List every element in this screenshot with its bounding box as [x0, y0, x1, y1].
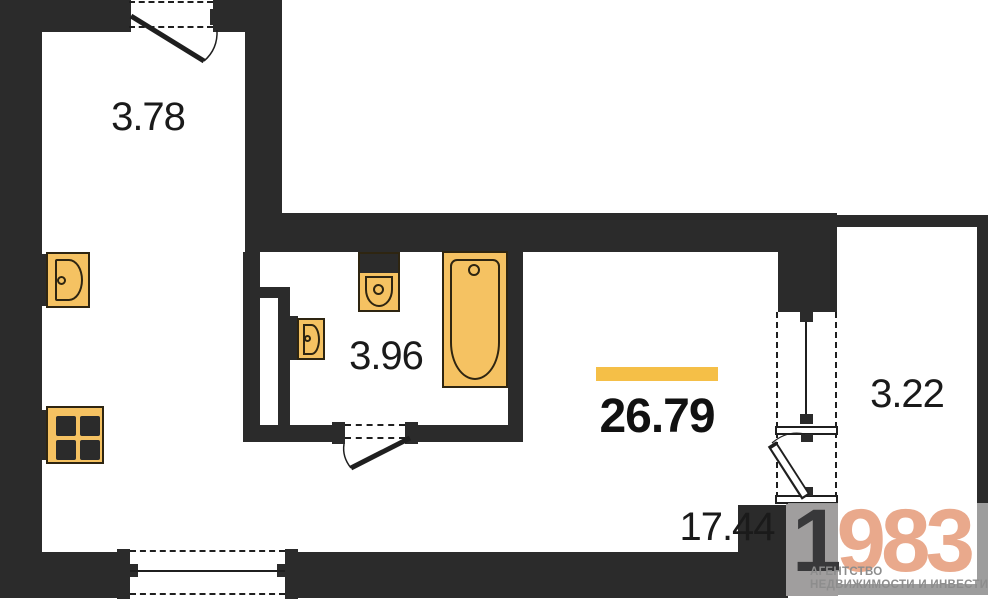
area-label-living-kitchen: 17.44 — [679, 505, 774, 550]
window-jamb-left — [117, 549, 130, 599]
wall-top-left — [0, 0, 120, 32]
wall-balcony-header — [778, 213, 837, 312]
kitchen-window-dash-inner — [130, 593, 285, 595]
balcony-sill-tab — [801, 434, 813, 442]
total-area-highlight-bar — [596, 367, 718, 381]
total-area-label: 26.79 — [599, 389, 714, 444]
bathtub-inner — [450, 259, 500, 380]
wall-bathroom-right — [508, 252, 523, 442]
bathtub — [442, 251, 508, 388]
bathroom-door-dash-top — [345, 424, 405, 426]
bathroom-door-dash-bottom — [345, 437, 405, 439]
entry-door-arc — [204, 30, 217, 61]
bathtub-drain — [468, 264, 480, 276]
wall-balcony-top — [837, 215, 977, 227]
stove-burner — [56, 416, 76, 436]
wall-bathroom-bottom-left — [243, 425, 338, 442]
wash-basin — [297, 318, 325, 360]
floor-plan: 3.78 3.96 17.44 3.22 26.79 1983 АГЕНТСТВ… — [0, 0, 988, 600]
wall-bathroom-left — [243, 252, 260, 442]
bathroom-door-jamb-left — [332, 422, 345, 444]
entry-door-opening-dash-top — [129, 1, 213, 3]
entry-door-opening-dash-bottom — [129, 26, 213, 28]
kitchen-window-glass-line — [130, 570, 285, 572]
wall-bottom-left — [0, 552, 120, 598]
entry-door-leaf — [131, 16, 204, 61]
area-label-balcony: 3.22 — [870, 372, 944, 417]
area-label-hallway: 3.78 — [111, 95, 185, 140]
wall-bathroom-partition — [278, 298, 290, 425]
toilet-cistern — [360, 254, 398, 273]
kitchen-sink — [46, 252, 90, 308]
wall-niche-top — [260, 287, 290, 298]
balcony-unit-dash-left — [776, 312, 778, 498]
bathroom-door-leaf — [351, 438, 410, 468]
kitchen-window-dash-outer — [130, 550, 285, 552]
stove-burner — [56, 440, 76, 460]
balcony-window-handle-bottom — [800, 414, 813, 424]
wall-bottom-middle — [296, 552, 738, 598]
stove-burner — [80, 440, 100, 460]
watermark-agency-line1: АГЕНТСТВО — [810, 566, 883, 578]
wash-basin-drain — [304, 335, 311, 342]
entry-door-latch-tab — [210, 9, 218, 25]
balcony-window-centerline — [805, 318, 807, 420]
wall-left — [0, 0, 42, 598]
bathroom-door-jamb-right — [405, 422, 418, 444]
wall-main-top — [245, 213, 778, 252]
balcony-unit-dash-right — [835, 312, 837, 498]
toilet-drain — [373, 284, 384, 295]
stove-burner — [80, 416, 100, 436]
balcony-window-handle-top — [800, 312, 813, 322]
bathroom-door-arc — [344, 444, 351, 468]
toilet — [358, 252, 400, 312]
stove — [46, 406, 104, 464]
kitchen-sink-drain — [57, 276, 66, 285]
watermark-agency-line2: НЕДВИЖИМОСТИ И ИНВЕСТИЦИЙ — [810, 579, 988, 591]
area-label-bathroom: 3.96 — [349, 334, 423, 379]
